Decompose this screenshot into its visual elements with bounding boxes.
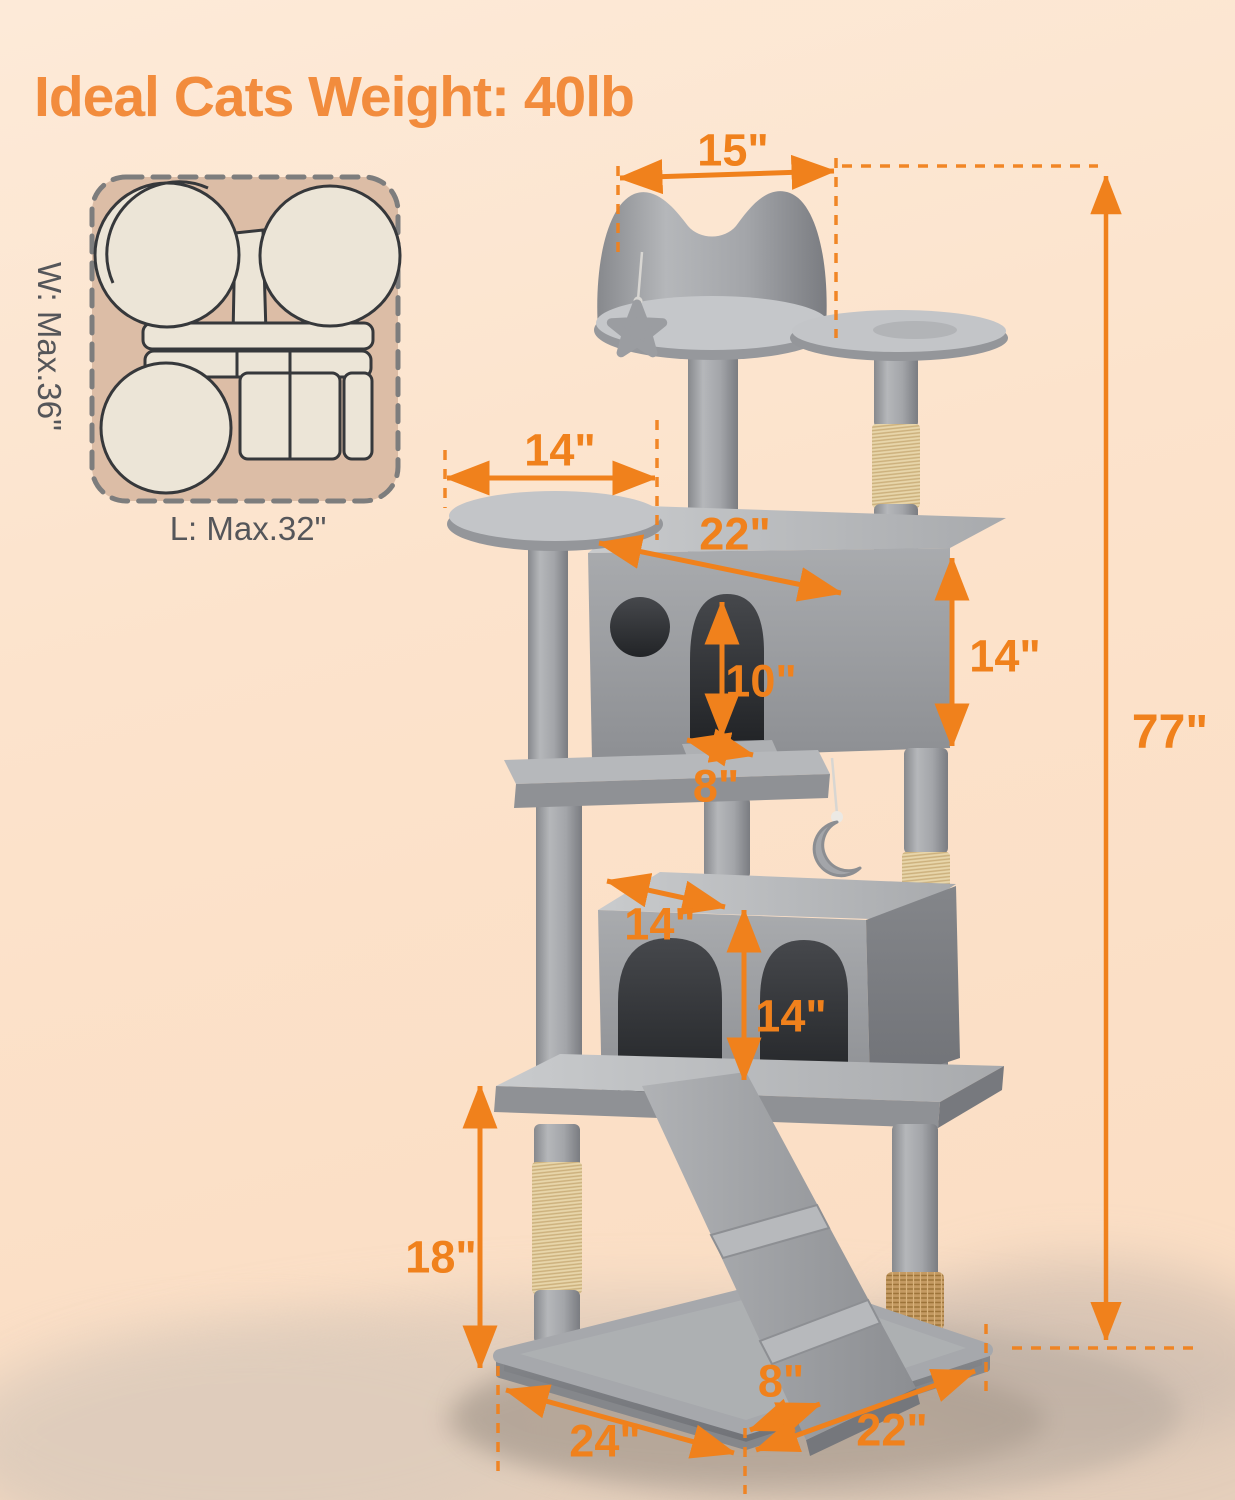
bottom-right-brush-post bbox=[886, 1124, 944, 1330]
footprint-platform-circle bbox=[101, 363, 231, 493]
bottom-left-sisal-post bbox=[532, 1124, 582, 1344]
dim-lower-condo-width: 14" bbox=[624, 902, 695, 947]
footprint-ramp bbox=[344, 373, 372, 459]
dim-base-width: 22" bbox=[856, 1408, 927, 1453]
footprint-perch-circle bbox=[95, 183, 239, 327]
dim-top-perch-width: 15" bbox=[697, 128, 768, 173]
dim-total-height: 77" bbox=[1132, 709, 1208, 757]
dim-left-platform-width: 14" bbox=[524, 428, 595, 473]
dim-post-height: 18" bbox=[405, 1235, 476, 1280]
mid-shelf bbox=[504, 750, 830, 808]
dim-upper-condo-height: 14" bbox=[969, 634, 1040, 679]
dim-lower-condo-height: 14" bbox=[755, 994, 826, 1039]
sisal-section bbox=[872, 424, 920, 508]
product-dimension-infographic: Ideal Cats Weight: 40lb W: Max.36" L: Ma… bbox=[0, 0, 1235, 1500]
right-round-platform bbox=[790, 310, 1008, 361]
left-platform-post bbox=[528, 538, 568, 766]
dim-door-width: 8" bbox=[693, 764, 739, 809]
dim-base-depth: 24" bbox=[569, 1419, 640, 1464]
footprint-top-view bbox=[88, 173, 402, 505]
dim-upper-condo-width: 22" bbox=[699, 512, 770, 557]
upper-condo bbox=[588, 506, 1006, 764]
footprint-length-label: L: Max.32" bbox=[128, 510, 368, 548]
dim-door-height: 10" bbox=[725, 659, 796, 704]
peek-hole bbox=[610, 597, 670, 657]
dim-ramp-width: 8" bbox=[758, 1359, 804, 1404]
footprint-inset bbox=[88, 173, 402, 505]
left-round-platform bbox=[447, 491, 663, 551]
footprint-platform-circle bbox=[260, 186, 400, 326]
footprint-width-label: W: Max.36" bbox=[30, 262, 68, 442]
shelf-left-post bbox=[536, 796, 582, 1090]
page-title: Ideal Cats Weight: 40lb bbox=[34, 64, 634, 130]
